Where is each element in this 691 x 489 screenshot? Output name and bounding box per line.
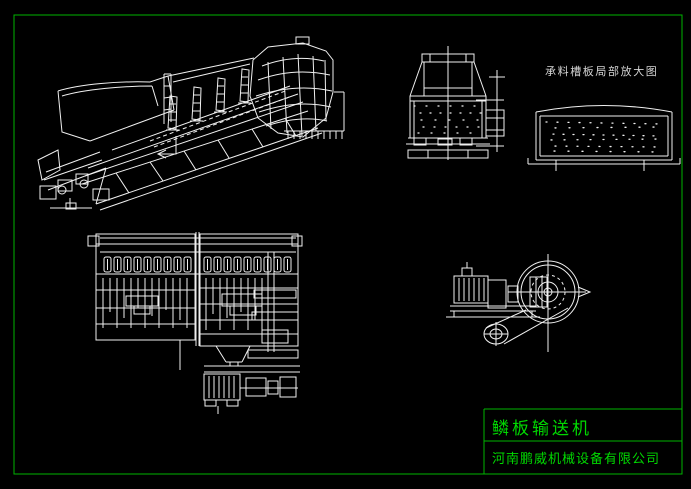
feed-chute [58,74,174,141]
title-block-drawing-name: 鳞板输送机 [492,414,592,439]
conveyor-isometric-view [38,37,344,210]
detail-view-label: 承料槽板局部放大图 [545,63,658,79]
hopper-front-view [406,46,505,160]
drive-motor [454,262,488,303]
plan-drive-motor [204,374,298,414]
head-sprocket-section [250,37,344,139]
drive-gearbox [488,280,506,308]
cad-drawing-canvas: 承料槽板局部放大图 鳞板输送机 河南鹏威机械设备有限公司 [0,0,691,489]
conveyor-plan-view [88,232,302,414]
title-block-company-name: 河南鹏威机械设备有限公司 [492,448,660,467]
tension-pulley [484,322,508,346]
tail-section [38,150,109,209]
trough-plate-detail-view [528,106,680,172]
drive-unit-side-view [446,254,590,352]
